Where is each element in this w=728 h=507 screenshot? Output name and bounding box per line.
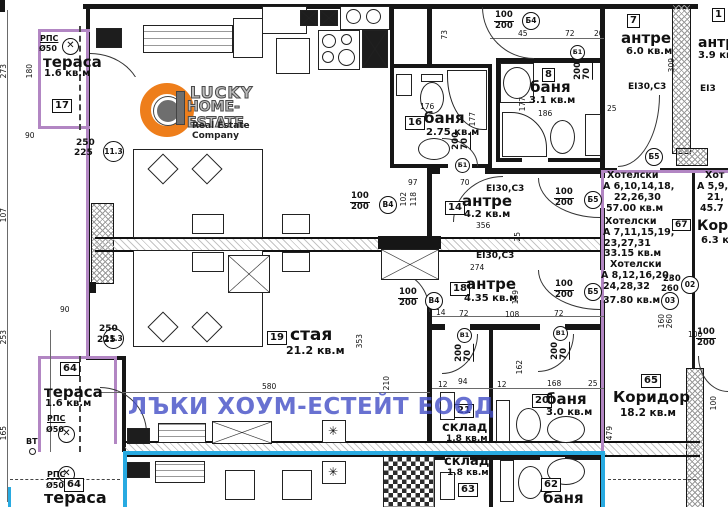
wall: [427, 330, 432, 442]
kitchen-cabinet: [300, 10, 318, 26]
burner: [322, 51, 334, 63]
hotel-list-line: 33.15 кв.м: [604, 249, 661, 260]
room-area-hall7: 6.0 кв.м: [626, 47, 672, 57]
fire-rating-label: EI30,C3: [486, 184, 524, 194]
dimension-label: 118: [410, 192, 418, 206]
door-size-tag: 100200: [494, 11, 514, 31]
burner: [341, 34, 352, 45]
hotel-list-line: 22,26,30: [614, 193, 661, 204]
kitchen-cabinet: [320, 10, 338, 26]
hotel-list-line: 37.80 кв.м: [603, 296, 660, 307]
dimension-label: 107: [0, 208, 8, 222]
hotel-list-line: 24,28,32: [603, 282, 650, 293]
door-code-circle: В1: [553, 326, 568, 341]
door-code-circle: Б1: [570, 45, 585, 60]
dimension-label: 102: [400, 192, 408, 206]
room-area-bath20: 3.0 кв.м: [546, 408, 592, 418]
dimension-label: 309: [668, 58, 676, 72]
room-name-bath20: баня: [546, 392, 587, 407]
room-area-room19: 21.2 кв.м: [286, 346, 345, 356]
kitchen-counter: [143, 25, 233, 53]
dimension-line: [432, 388, 604, 389]
boundary-line-purple: [38, 126, 90, 129]
kitchen-table: [276, 38, 310, 74]
wall: [489, 460, 493, 507]
dimension-label: 260: [661, 285, 679, 293]
room-name-hall18: антре: [466, 277, 516, 292]
wall: [489, 330, 493, 442]
oven: [362, 30, 388, 68]
utility-line-cyan: [601, 451, 605, 507]
kitchen-cabinet: [233, 18, 263, 58]
dimension-label: 273: [0, 64, 8, 78]
wall: [488, 64, 492, 168]
dimension-label: 72: [459, 310, 469, 318]
bathtub: [502, 112, 547, 157]
round-table: [282, 470, 312, 500]
wall: [470, 324, 540, 330]
dimension-label: 70: [460, 179, 470, 187]
dimension-label: 14: [436, 309, 446, 317]
room-area-hall18: 4.35 кв.м: [464, 294, 517, 304]
dimension-label: 165: [0, 426, 8, 440]
sink: [547, 416, 585, 443]
corridor-right-area: 6.3 к: [701, 236, 728, 246]
fire-rating-label: EI30,C3: [476, 251, 514, 261]
dimension-label: 250: [99, 325, 118, 333]
room-number-7: 7: [627, 14, 640, 28]
dimension-label: 97: [408, 179, 418, 187]
dimension-label: 356: [476, 222, 490, 230]
washing-machine: [496, 400, 510, 442]
cabinet: [158, 423, 206, 443]
tiled-area: [383, 456, 435, 507]
wall: [390, 4, 394, 66]
appliance: [127, 428, 150, 444]
round-table: [225, 470, 255, 500]
dimension-label: 159: [512, 290, 520, 304]
dimension-label: 353: [356, 334, 364, 348]
door-size-tag: 100200: [398, 288, 418, 308]
dimension-label: 25: [588, 380, 598, 388]
nightstand: [282, 214, 310, 234]
fire-rating-label: EI30,C3: [628, 82, 666, 92]
door-size-tag: 100200: [554, 280, 574, 300]
door-size-tag: 20070: [455, 344, 474, 362]
dimension-label: 90: [60, 306, 70, 314]
dimension-label: 260: [666, 314, 674, 328]
logo-bar-icon: [176, 91, 185, 125]
hotel-list-line: А 8,12,16,20,: [601, 271, 672, 282]
room-name-corridor65: Коридор: [613, 390, 690, 405]
nightstand: [192, 214, 224, 234]
door-code-circle: Б4: [522, 12, 540, 30]
axis-marker: 11.3: [103, 141, 124, 162]
unit-box-67: 67: [672, 219, 691, 231]
dimension-label: 225: [97, 336, 116, 344]
boundary-line-purple: [38, 29, 90, 32]
room-name-storage21: склад: [442, 420, 487, 435]
door-size-tag: 100200: [350, 192, 370, 212]
dimension-label: 479: [606, 426, 614, 440]
dimension-label: 162: [516, 360, 524, 374]
fixture-mark: ✳: [328, 425, 338, 437]
door-size-tag: 100200: [554, 188, 574, 208]
dimension-label: 108: [505, 311, 519, 319]
wall: [427, 168, 432, 237]
washing-machine: [396, 74, 412, 96]
dimension-label: 210: [383, 376, 391, 390]
room-number-16: 16: [405, 116, 425, 130]
rps-diameter: Ø50: [46, 425, 64, 434]
dimension-label: 176: [420, 103, 434, 111]
unit-circle-02: 02: [681, 276, 699, 294]
cabinet: [155, 461, 205, 483]
door-code-circle: Б5: [584, 283, 602, 301]
room-area-storage21: 1.8 кв.м: [446, 434, 488, 444]
room-name-hall-right: антре: [698, 36, 728, 51]
toilet: [550, 120, 575, 154]
boundary-line-purple: [38, 356, 41, 452]
toilet-tank: [421, 74, 443, 82]
wall: [390, 64, 492, 68]
hotel-list-line: 45.7: [700, 204, 723, 215]
room-name-bath16: баня: [424, 111, 465, 126]
hotel-list-line: Хотелски: [610, 260, 662, 271]
rps-diameter: Ø50: [39, 44, 57, 53]
room-name-bath62: баня: [543, 491, 584, 506]
sink: [503, 67, 531, 99]
vt-node: [29, 448, 36, 455]
sink: [418, 138, 450, 160]
dimension-label: 186: [538, 110, 552, 118]
utility-line-cyan: [125, 451, 605, 455]
door-code-circle: В1: [457, 328, 472, 343]
rps-label: РПС: [40, 34, 58, 43]
door-size-tag: 20070: [551, 342, 570, 360]
room-number-64: 64: [60, 362, 80, 376]
nightstand: [282, 252, 310, 272]
shaft: [381, 249, 439, 280]
door-code-circle: В4: [379, 196, 397, 214]
room-name-storage63: склад: [444, 454, 489, 469]
dimension-label: 177: [519, 97, 527, 111]
wall: [88, 282, 96, 293]
door-size-tag: 20070: [574, 62, 593, 80]
dimension-label: 72: [554, 310, 564, 318]
fixture-mark: ✳: [328, 466, 338, 478]
dimension-label: 168: [547, 380, 561, 388]
room-name-room19: стая: [290, 328, 332, 343]
vt-label: ВТ: [26, 437, 38, 446]
dimension-label: 580: [262, 383, 276, 391]
hotel-list-line: 21,: [707, 193, 724, 204]
dimension-label: 250: [76, 139, 95, 147]
rps-label: РПС: [47, 470, 65, 479]
dimension-label: 225: [74, 149, 93, 157]
wall: [427, 4, 432, 66]
boundary-line-purple: [601, 170, 604, 452]
utility-line-cyan: [8, 487, 11, 507]
wall: [485, 168, 604, 174]
wall: [548, 158, 604, 162]
sink-bowl: [346, 9, 361, 24]
dimension-label: 90: [25, 132, 35, 140]
dimension-label: 12: [497, 381, 507, 389]
door-size-tag: 20070: [452, 132, 471, 150]
door-code-circle: Б5: [584, 191, 602, 209]
dimension-label: 253: [0, 330, 8, 344]
room-name-hall7: антре: [621, 31, 671, 46]
room-name-bath8: баня: [530, 80, 571, 95]
kitchen-appliance: [96, 28, 122, 48]
burner: [338, 49, 355, 66]
dimension-label: 100: [688, 331, 702, 339]
dimension-label: 274: [470, 264, 484, 272]
dimension-label: 72: [565, 30, 575, 38]
floor-plan: ✳ ✳ ✕ ✕ ✕ 17 тераса 1.6 кв.м РПС Ø50 16 …: [0, 0, 728, 507]
wall: [565, 324, 604, 330]
dimension-label: 100: [710, 396, 718, 410]
washing-machine: [500, 460, 514, 502]
toilet: [516, 408, 541, 441]
dimension-label: 12: [438, 381, 448, 389]
room-area-storage63: 1.8 кв.м: [447, 468, 489, 478]
table: [212, 421, 272, 444]
hotel-list-line: А 6,10,14,18,: [603, 182, 674, 193]
rps-label: РПС: [47, 414, 65, 423]
room-name-hall14: антре: [462, 194, 512, 209]
fire-rating-label: EI3: [700, 84, 716, 94]
dimension-label: 180: [26, 64, 34, 78]
washing-machine: [585, 114, 601, 156]
dimension-label: 20: [594, 30, 604, 38]
nightstand: [192, 252, 224, 272]
room-number-17: 17: [52, 99, 72, 113]
sink-bowl: [366, 9, 381, 24]
watermark: ЛЪКИ ХОУМ-ЕСТЕЙТ ЕООД: [128, 394, 495, 420]
room-area-bath8: 3.1 кв.м: [529, 96, 575, 106]
door-code-circle: Б1: [455, 158, 470, 173]
axis-line: [608, 479, 696, 480]
toilet: [518, 466, 543, 499]
logo-tagline: Real Estate Company: [192, 121, 292, 141]
wall: [0, 0, 5, 12]
room-number-19: 19: [267, 331, 287, 345]
room-area-hall-right: 3.9 кв.м: [698, 51, 728, 61]
hatched-wall: [672, 4, 691, 154]
hotel-list-line: 57.00 кв.м: [606, 204, 663, 215]
table: [228, 255, 270, 293]
hotel-list-line: Хотелски: [607, 171, 659, 182]
room-number-1: 1: [712, 8, 725, 22]
unit-circle-03: 03: [661, 292, 679, 310]
dimension-label: 177: [469, 112, 477, 126]
room-area-terrace64: 1.6 кв.м: [45, 399, 91, 409]
agency-logo: LUCKY HOME-ESTATE Real Estate Company: [132, 77, 292, 143]
burner: [322, 34, 336, 48]
dimension-label: 230: [663, 275, 681, 283]
dimension-line: [95, 392, 430, 393]
hotel-list-line: Хот: [705, 171, 724, 182]
room-area-hall14: 4.2 кв.м: [464, 210, 510, 220]
appliance: [127, 462, 150, 478]
hotel-list-line: Хотелски: [605, 217, 657, 228]
room-name-terrace64b: тераса: [44, 490, 107, 505]
dimension-label: 73: [441, 30, 449, 40]
dimension-label: 45: [518, 30, 528, 38]
dimension-label: 25: [514, 232, 522, 242]
dimension-label: 25: [607, 105, 617, 113]
utility-line-cyan: [123, 451, 127, 507]
hotel-list-line: А 7,11,15,19,: [603, 228, 674, 239]
wall: [390, 64, 394, 168]
room-area-corridor65: 18.2 кв.м: [620, 408, 676, 418]
dimension-label: 94: [458, 378, 468, 386]
hatched-wall: [676, 148, 708, 166]
wall: [496, 158, 522, 162]
door-code-circle: Б5: [645, 148, 663, 166]
room-number-63: 63: [458, 483, 478, 497]
hotel-list-line: А 5,9,: [697, 182, 728, 193]
room-area-terrace17: 1.6 кв.м: [44, 69, 90, 79]
corridor-right-label: Кор: [697, 219, 728, 234]
room-number-65: 65: [641, 374, 661, 388]
